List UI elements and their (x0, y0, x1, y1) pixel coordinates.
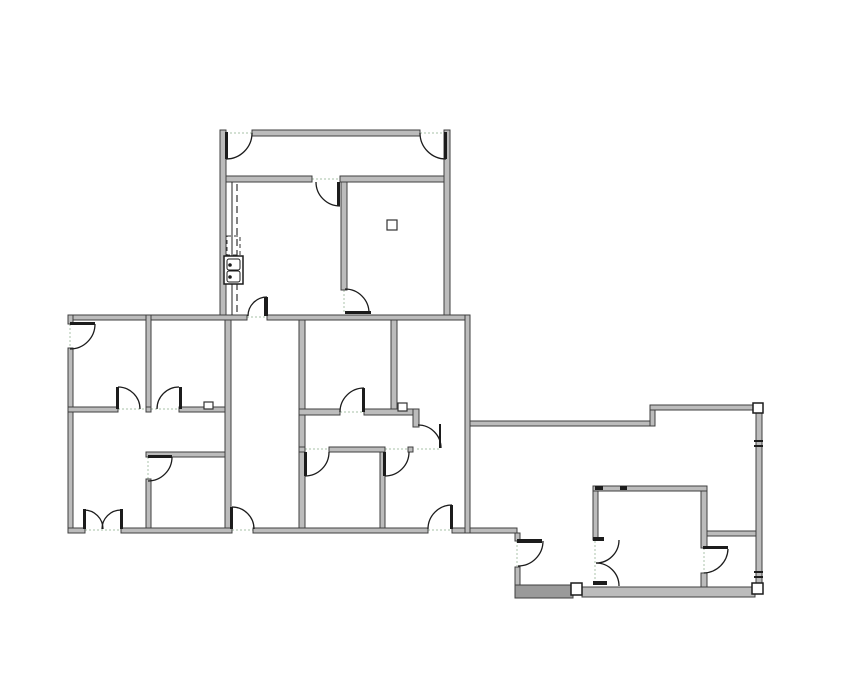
door-leaf (179, 387, 182, 409)
door-swing-arc (305, 452, 329, 476)
wall-segment (299, 409, 340, 415)
wall-mark (754, 445, 763, 447)
wall-segment (225, 320, 231, 528)
door-swing-arc (102, 510, 121, 529)
door-leaf (345, 311, 371, 314)
door-swing-arc (157, 387, 179, 409)
door-leaf (383, 452, 386, 476)
wall-segment (68, 315, 247, 320)
wall-mark (620, 486, 627, 490)
door-leaf (148, 455, 172, 458)
door-swing-arc (340, 388, 364, 412)
door-leaf (304, 452, 307, 476)
door-leaf (337, 182, 340, 206)
door-leaf (450, 505, 453, 529)
door-swing-arc (70, 324, 95, 349)
door-swing-arc (420, 133, 446, 159)
wall-segment (179, 407, 225, 412)
wall-segment (329, 447, 385, 452)
wall-segment (299, 447, 305, 452)
door-swing-arc (596, 540, 619, 563)
corner-column (571, 583, 582, 595)
wall-mark (754, 440, 763, 442)
wall-mark (754, 571, 763, 573)
wall-segment (253, 528, 428, 533)
door-swing-arc (385, 452, 409, 476)
door-leaf (264, 297, 268, 316)
wall-segment (68, 348, 73, 533)
wall-segment (452, 528, 517, 533)
wall-segment (68, 407, 118, 412)
wall-segment (593, 487, 598, 540)
wall-mark (593, 581, 607, 585)
hatched-wall-segment (515, 585, 573, 598)
door-leaf (703, 546, 728, 549)
sink-faucet-dot (228, 275, 232, 279)
wall-segment (515, 567, 520, 587)
wall-segment (413, 409, 419, 427)
wall-segment (701, 491, 707, 548)
wall-mark (595, 486, 603, 490)
corner-column (753, 403, 763, 413)
door-layer (70, 132, 728, 586)
door-leaf (70, 322, 95, 325)
wall-segment (470, 421, 653, 426)
wall-segment (582, 587, 755, 597)
door-swing-arc (148, 457, 172, 481)
door-swing-arc (418, 425, 441, 448)
door-leaf (83, 509, 86, 529)
door-leaf (120, 509, 123, 529)
threshold-layer (70, 133, 704, 585)
door-swing-arc (518, 541, 543, 566)
wall-segment (299, 320, 305, 528)
wall-segment (146, 479, 151, 533)
door-swing-arc (428, 505, 452, 529)
wall-layer (68, 130, 763, 598)
wall-segment (465, 315, 470, 533)
floor-plan-page (0, 0, 855, 678)
wall-segment (364, 409, 419, 415)
fixture-square (387, 220, 397, 230)
wall-segment (121, 528, 232, 533)
wall-segment (68, 528, 85, 533)
wall-segment (650, 405, 757, 410)
floor-plan-svg (0, 0, 855, 678)
wall-mark (593, 537, 604, 541)
wall-segment (226, 176, 312, 182)
door-leaf (362, 388, 365, 412)
wall-segment (252, 130, 420, 136)
door-swing-arc (316, 182, 340, 206)
wall-mark (754, 576, 763, 578)
wall-segment (408, 447, 413, 452)
overhead-dashed-cabinet (227, 236, 240, 255)
wall-segment (341, 182, 347, 290)
sink-faucet-dot (228, 263, 232, 267)
door-swing-arc (704, 549, 728, 573)
wall-segment (756, 410, 762, 588)
door-leaf (225, 132, 228, 159)
fixture-square (398, 403, 407, 411)
corner-column (752, 583, 763, 594)
wall-segment (340, 176, 444, 182)
door-swing-arc (345, 289, 369, 313)
wall-segment (146, 407, 151, 412)
door-leaf (116, 387, 119, 409)
door-leaf (444, 132, 447, 159)
wall-segment (146, 315, 151, 407)
door-swing-arc (232, 507, 254, 529)
door-swing-arc (118, 387, 140, 409)
door-leaf (517, 539, 542, 543)
wall-segment (391, 320, 397, 410)
door-swing-arc (226, 133, 252, 159)
wall-segment (593, 486, 707, 491)
wall-segment (267, 315, 470, 320)
door-swing-arc (84, 510, 103, 529)
wall-segment (707, 531, 756, 536)
fixture-square (204, 402, 213, 409)
door-leaf (230, 507, 233, 529)
